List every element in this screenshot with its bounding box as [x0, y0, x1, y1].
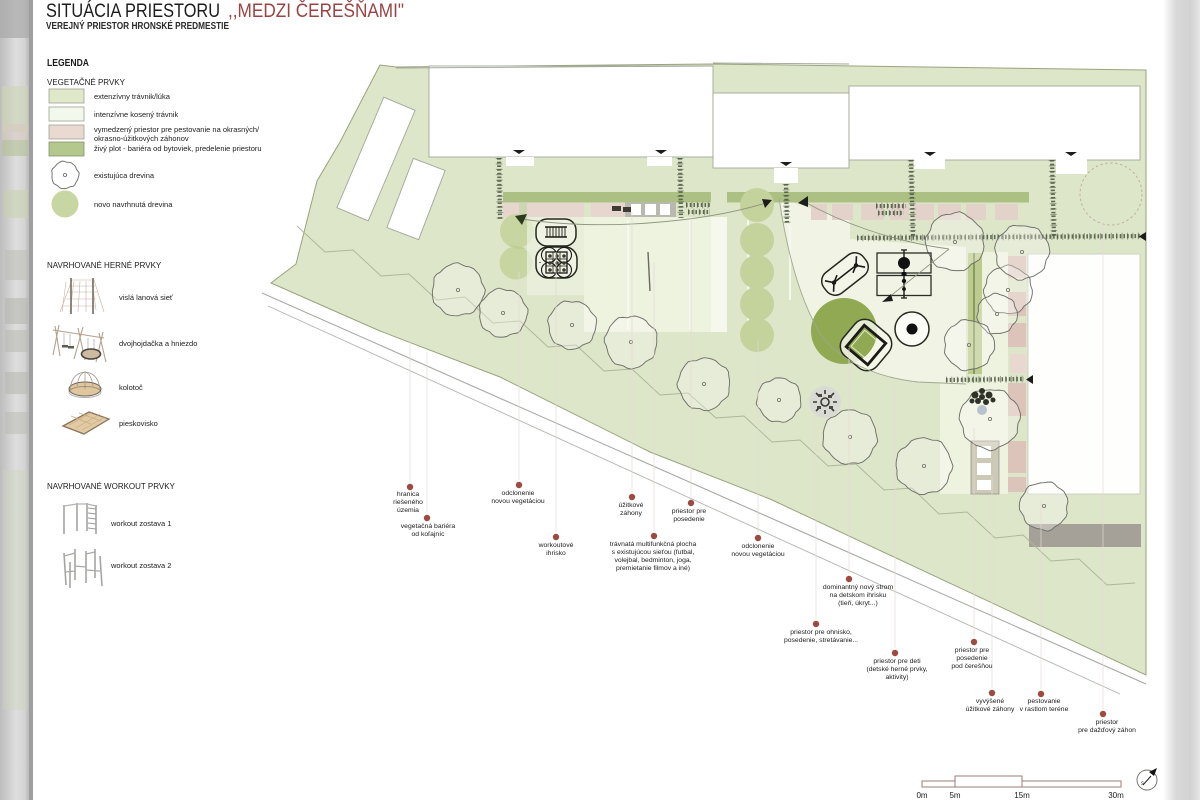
svg-text:existujúca drevina: existujúca drevina: [94, 171, 155, 180]
svg-text:NAVRHOVANÉ HERNÉ PRVKY: NAVRHOVANÉ HERNÉ PRVKY: [47, 261, 162, 270]
svg-text:kolotoč: kolotoč: [119, 383, 143, 392]
svg-text:posedenie: posedenie: [956, 655, 988, 662]
svg-text:vislá lanová sieť: vislá lanová sieť: [119, 293, 173, 302]
svg-text:(tieň, úkryt...): (tieň, úkryt...): [838, 600, 878, 607]
svg-text:volejbal, bedminton, joga,: volejbal, bedminton, joga,: [614, 557, 691, 564]
svg-text:5m: 5m: [949, 791, 960, 800]
svg-text:vymedzený priestor pre pestova: vymedzený priestor pre pestovanie na okr…: [94, 125, 260, 134]
svg-text:novou vegetáciou: novou vegetáciou: [731, 551, 785, 558]
svg-text:priestor pre: priestor pre: [672, 508, 707, 515]
svg-text:pre dažďový záhon: pre dažďový záhon: [1078, 727, 1136, 734]
svg-text:priestor pre: priestor pre: [955, 647, 990, 654]
svg-text:pod čerešňou: pod čerešňou: [951, 663, 992, 670]
svg-text:aktivity): aktivity): [885, 674, 908, 681]
svg-text:riešeného: riešeného: [393, 499, 423, 506]
svg-text:hranica: hranica: [397, 491, 420, 498]
svg-text:LEGENDA: LEGENDA: [47, 57, 89, 69]
svg-text:(detské herné prvky,: (detské herné prvky,: [866, 666, 927, 673]
svg-text:novo navrhnutá drevina: novo navrhnutá drevina: [94, 200, 173, 209]
svg-text:workout zostava 2: workout zostava 2: [110, 561, 171, 570]
svg-text:územia: územia: [397, 507, 419, 514]
svg-text:novou vegetáciou: novou vegetáciou: [491, 498, 545, 505]
svg-text:premietanie filmov a iné): premietanie filmov a iné): [616, 565, 690, 572]
svg-text:pieskovisko: pieskovisko: [119, 419, 158, 428]
svg-text:,,MEDZI ČEREŠŇAMI": ,,MEDZI ČEREŠŇAMI": [228, 0, 404, 22]
svg-text:priestor pre deti: priestor pre deti: [873, 658, 921, 665]
svg-text:0m: 0m: [916, 791, 927, 800]
svg-text:s: s: [1141, 781, 1144, 787]
svg-text:vegetačná bariéra: vegetačná bariéra: [401, 523, 456, 530]
svg-text:30m: 30m: [1108, 791, 1124, 800]
svg-text:VEGETAČNÉ PRVKY: VEGETAČNÉ PRVKY: [47, 78, 126, 87]
svg-text:priestor pre ohnisko,: priestor pre ohnisko,: [790, 629, 852, 636]
svg-text:úžitkové: úžitkové: [619, 502, 644, 509]
svg-text:úžitkové záhony: úžitkové záhony: [966, 706, 1015, 713]
svg-text:ihrisko: ihrisko: [546, 550, 566, 557]
svg-text:odclonenie: odclonenie: [742, 543, 775, 550]
svg-text:vyvýšené: vyvýšené: [976, 698, 1005, 705]
svg-text:na detskom ihrisku: na detskom ihrisku: [830, 592, 887, 599]
svg-text:okrasno-úžitkových záhonov: okrasno-úžitkových záhonov: [94, 134, 189, 143]
svg-text:dvojhojdačka a hniezdo: dvojhojdačka a hniezdo: [119, 339, 197, 348]
svg-text:workoutové: workoutové: [538, 542, 574, 549]
svg-text:intenzívne kosený trávnik: intenzívne kosený trávnik: [94, 110, 178, 119]
svg-text:trávnatá multifunkčná plocha: trávnatá multifunkčná plocha: [610, 541, 697, 548]
svg-text:NAVRHOVANÉ WORKOUT PRVKY: NAVRHOVANÉ WORKOUT PRVKY: [47, 482, 176, 491]
svg-text:VEREJNÝ PRIESTOR HRONSKÉ PREDM: VEREJNÝ PRIESTOR HRONSKÉ PREDMESTIE: [46, 19, 229, 32]
svg-text:posedenie: posedenie: [673, 516, 705, 523]
svg-text:dominantný nový strom: dominantný nový strom: [823, 584, 894, 591]
svg-text:workout zostava 1: workout zostava 1: [110, 519, 171, 528]
svg-text:extenzívny trávnik/lúka: extenzívny trávnik/lúka: [94, 92, 171, 101]
svg-text:posedenie, stretávanie...: posedenie, stretávanie...: [784, 637, 858, 644]
svg-text:odclonenie: odclonenie: [502, 490, 535, 497]
svg-text:15m: 15m: [1014, 791, 1030, 800]
svg-text:pestovanie: pestovanie: [1028, 698, 1061, 705]
svg-text:SITUÁCIA PRIESTORU: SITUÁCIA PRIESTORU: [46, 1, 220, 22]
svg-text:priestor: priestor: [1096, 719, 1119, 726]
svg-text:záhony: záhony: [620, 510, 643, 517]
svg-text:v rastlom teréne: v rastlom teréne: [1020, 706, 1069, 713]
svg-text:živý plot - bariéra od bytovie: živý plot - bariéra od bytoviek, predele…: [94, 144, 262, 153]
svg-text:s existujúcou sieťou (futbal,: s existujúcou sieťou (futbal,: [612, 549, 695, 556]
svg-text:od koľajníc: od koľajníc: [412, 531, 446, 538]
